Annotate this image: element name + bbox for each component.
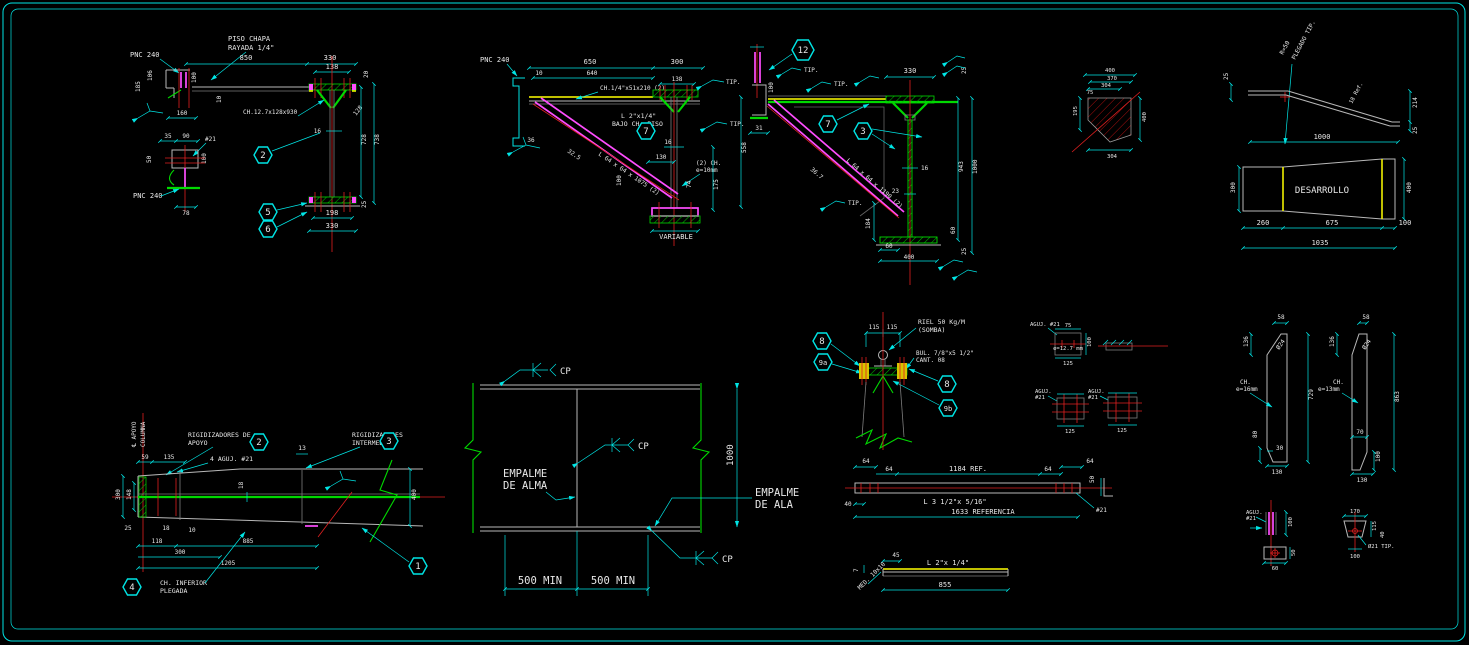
d10-dim-58l: 58 [1277,314,1285,321]
detail-10-web-plates: 58 136 Ø24 729 80 30 130 CH. e=16mm 58 1… [1236,314,1401,484]
d7-dim-500min-1: 500 MIN [518,575,562,587]
d1-dim-128: 128 [352,104,364,117]
d3-dim-330: 330 [904,67,917,75]
d6-ch-inf-2: PLEGADA [160,587,187,595]
d7-cp-2: CP [638,442,649,452]
d9-p4-bottom: 125 [1117,428,1127,434]
balloon-5-label: 5 [265,208,270,218]
d6-dim-10: 10 [188,527,196,534]
d3-dim-400: 400 [904,254,915,261]
d2-l-note-1: L 2"x1/4" [621,112,656,120]
d8-bul-note-2: CANT. 08 [916,357,945,364]
d1-pnc-bot: PNC 240 [133,192,163,200]
d12-dim-170: 170 [1350,509,1360,515]
d3-dim-100: 100 [768,82,775,93]
d6-dim-18: 18 [162,525,170,532]
d7-cp-1: CP [560,367,571,377]
d6-dim-400: 400 [411,489,418,500]
d6-dim-148: 148 [126,489,133,500]
d8-bul-note-1: BUL. 7/8"x5 1/2" [916,350,974,357]
d2-dim-74: 74 [686,180,693,188]
d7-empalme-alma-2: DE ALMA [503,480,548,492]
d9-p1-right: 100 [1087,337,1093,347]
cad-canvas: PISO CHAPA RAYADA 1/4" PNC 240 850 330 1… [0,0,1469,645]
d2-dim-36: 36 [527,137,535,144]
d1-dim-20: 20 [363,70,370,78]
cad-drawing-sheet: PISO CHAPA RAYADA 1/4" PNC 240 850 330 1… [0,0,1469,645]
d6-rig-apoyo-2: APOYO [188,439,208,447]
d9-p4-label-2: #21 [1088,395,1098,401]
balloon-7b-label: 7 [825,120,830,130]
d1-dim-160: 160 [177,110,188,117]
d1-dim-330: 330 [324,54,337,62]
d2-variable: VARIABLE [659,233,693,241]
d2-dim-138: 138 [672,76,683,83]
d2-tip-2: TIP. [730,121,744,128]
balloon-9b-label: 9b [944,405,952,413]
d10-ch-left-2: e=16mm [1236,386,1258,393]
detail-8-rail: 115 115 RIEL 50 Kg/M (SOMBA) BUL. 7/8"x5… [813,312,974,450]
d2-l-note-2: BAJO CH. PISO [612,120,663,128]
detail-9-drilled-plates: AGUJ. #21 75 e=12.7 mm 125 100 AGUJ. #21… [1030,322,1168,435]
d3-dim-31: 31 [755,125,763,132]
d10-dim-30: 30 [1276,445,1284,452]
d9-p1-label: AGUJ. #21 [1030,322,1060,328]
d9-p1-top: 75 [1065,323,1072,329]
d2-ch2-note-2: e=10mm [696,167,718,174]
d5-dim-214: 214 [1412,97,1419,108]
d7-cp-3: CP [722,555,733,565]
balloon-4-label: 4 [129,583,134,593]
d2-strut-label: L 64 x 64 x 1075 (2) [597,151,661,197]
d11-dim-855: 855 [939,581,952,589]
d5-note-r50: R=50 [1279,40,1292,56]
d5-dim-260: 260 [1257,219,1270,227]
d6-centerline-columna: COLUMNA [140,421,147,447]
d11-dim-64a: 64 [862,458,870,465]
d1-dim-850: 850 [240,54,253,62]
d6-dim-118: 118 [152,538,163,545]
d2-dim-130: 130 [656,154,667,161]
detail-12-hole-details: AGUJ. #21 100 50 60 170 115 40 100 Ø21 T… [1246,500,1395,572]
d5-dim-1035: 1035 [1312,239,1329,247]
d11-dim-64b: 64 [885,466,893,473]
d11-bar2-label: L 2"x 1/4" [927,559,969,567]
d12-note-tip: Ø21 TIP. [1368,543,1395,550]
d10-dim-130l: 130 [1272,469,1283,476]
d12-dim-115: 115 [1372,521,1378,531]
d8-riel-note-1: RIEL 50 Kg/M [918,318,965,326]
d6-centerline-apoyo: ℄ APOYO [131,421,138,448]
d11-hole-21: #21 [1096,507,1107,514]
d6-dim-13: 13 [298,444,306,452]
d7-empalme-ala-2: DE ALA [755,499,794,511]
d2-dim-650: 650 [584,58,597,66]
d2-tip-1: TIP. [726,79,740,86]
detail-7-splice: CP CP CP EMPALME DE ALMA EMPALME DE ALA … [465,363,799,596]
d1-dim-100: 100 [191,72,198,83]
d1-ch-note: CH.12.7x128x930 [243,109,298,116]
d3-dim-184: 184 [865,218,872,229]
d11-bar1-label: L 3 1/2"x 5/16" [923,498,986,506]
d3-dim-60: 60 [885,243,893,250]
d6-rig-apoyo-1: RIGIDIZADORES DE [188,431,251,439]
d10-dim-100r: 100 [1375,451,1382,462]
balloon-7-label: 7 [643,127,648,137]
d6-dim-300: 300 [175,549,186,556]
d10-dim-70: 70 [1356,429,1364,436]
d1-dim-10: 10 [216,95,223,103]
d4-dim-370: 370 [1107,76,1117,82]
d12-dim-100l: 100 [1288,517,1294,527]
d11-dim-64e: 64 [1086,458,1094,465]
d2-ch2-note-1: (2) CH. [696,160,721,167]
d3-dim-25b: 25 [961,247,968,255]
d2-dim-175: 175 [713,179,720,190]
d5-dim-25r: 25 [1412,126,1419,134]
d5-ref-18: 18 Ref. [1348,82,1364,105]
d11-ref-1184: 1184 REF. [949,465,987,473]
d7-dim-500min-2: 500 MIN [591,575,635,587]
detail-2-bracket-strut: PNC 240 650 300 10 640 138 CH.1/4"x51x21… [480,56,748,246]
d2-dim-558: 558 [741,142,748,153]
d10-dim-863: 863 [1394,391,1401,402]
d4-dim-304b: 304 [1107,154,1118,160]
d6-dim-135: 135 [164,454,175,461]
balloon-6-label: 6 [265,225,270,235]
balloon-12-label: 12 [798,46,809,56]
d1-dim-90: 90 [182,133,190,140]
d10-dim-130r: 130 [1357,477,1368,484]
d4-dim-304t: 304 [1101,83,1112,89]
d5-desarrollo-label: DESARROLLO [1295,186,1349,196]
d2-pnc: PNC 240 [480,56,510,64]
d1-dim-738: 738 [374,134,381,145]
d4-dim-400r: 400 [1142,112,1148,122]
balloon-3b-label: 3 [386,437,391,447]
d1-hole-21: #21 [205,136,216,143]
d10-ch-right-1: CH. [1333,379,1344,386]
d6-aguj-note: 4 AGUJ. #21 [210,455,253,463]
balloon-3-label: 3 [860,127,865,137]
d10-ch-right-2: e=13mm [1318,386,1340,393]
balloon-1-label: 1 [415,562,420,572]
balloon-2b-label: 2 [256,438,261,448]
d8-dim-115b: 115 [887,324,898,331]
d11-dim-7: 7 [853,568,860,572]
d12-dim-100r: 100 [1350,554,1360,560]
d9-p3-bottom: 125 [1065,429,1075,435]
d1-dim-728: 728 [361,134,368,145]
d11-dim-50: 50 [1089,475,1096,483]
d10-ch-left-1: CH. [1240,379,1251,386]
d4-dim-400t: 400 [1105,68,1115,74]
d5-note-plegado: PLEGADO TIP. [1291,19,1318,61]
d3-dim-1000: 1000 [972,159,979,174]
d6-dim-25: 25 [124,525,132,532]
d5-dim-675: 675 [1326,219,1339,227]
d3-tip-3: TIP. [848,200,862,207]
d3-angle: 36.7 [809,166,825,181]
d6-dim-300v: 300 [115,489,122,500]
d5-dim-25l: 25 [1223,72,1230,80]
detail-1-beam-section: PISO CHAPA RAYADA 1/4" PNC 240 850 330 1… [130,35,381,252]
d6-dim-1205: 1205 [221,560,236,567]
detail-5-bent-plate: R=50 PLEGADO TIP. 25 18 Ref. 214 25 1000… [1223,19,1419,248]
balloon-9a-label: 9a [819,359,827,367]
d10-dim-o24r: Ø24 [1361,338,1373,351]
d1-piso-note-1: PISO CHAPA [228,35,271,43]
detail-6-beam-elevation: ℄ APOYO COLUMNA RIGIDIZADORES DE APOYO 2… [112,413,445,595]
d5-dim-100: 100 [1399,219,1412,227]
d2-dim-10: 10 [535,70,543,77]
d11-ref-1633: 1633 REFERENCIA [951,508,1015,516]
d6-dim-18w: 18 [238,481,245,489]
detail-11-angle-bars: 64 64 1184 REF. 64 64 40 1633 REFERENCIA… [844,458,1113,591]
d2-dim-100: 100 [616,175,623,186]
d1-dim-185: 185 [135,81,142,92]
balloon-2-label: 2 [260,151,265,161]
d5-dim-400: 400 [1406,182,1413,193]
d3-dim-16: 16 [921,165,929,172]
d12-label-2: #21 [1246,516,1256,522]
d4-dim-195: 195 [1073,106,1079,116]
d11-dim-64c: 64 [1044,466,1052,473]
detail-3-bracket-column: 12 100 TIP. TIP. 330 25 7 3 L 64 x 64 x … [750,40,979,285]
d11-dim-45: 45 [892,552,900,559]
d1-pnc-top: PNC 240 [130,51,160,59]
d3-dim-943: 943 [958,161,965,172]
d12-dim-40: 40 [1380,531,1386,538]
d1-dim-198: 198 [326,209,339,217]
d11-med-note: MED. 10x10 [856,561,887,592]
d1-dim-25: 25 [361,200,368,208]
d2-dim-640: 640 [587,70,598,77]
d8-dim-115a: 115 [869,324,880,331]
d1-dim-35: 35 [164,133,172,140]
d9-p1-bottom: 125 [1063,361,1073,367]
d7-empalme-ala-1: EMPALME [755,487,799,499]
d6-dim-885: 885 [243,538,254,545]
d3-dim-23: 23 [892,188,900,195]
d2-dim-300: 300 [671,58,684,66]
d3-dim-60r: 60 [950,226,957,234]
d2-dim-16: 16 [664,139,672,146]
balloon-8a-label: 8 [819,337,824,347]
d12-dim-50: 50 [1291,549,1297,556]
d2-angle: 32.5 [566,148,582,162]
d6-dim-59: 59 [141,454,149,461]
balloon-8b-label: 8 [944,380,949,390]
d4-dim-75: 75 [1087,90,1094,96]
d1-dim-330b: 330 [326,222,339,230]
d9-p3-label-2: #21 [1035,395,1045,401]
d1-dim-78: 78 [182,210,190,217]
d12-dim-60: 60 [1272,566,1279,572]
d10-dim-729: 729 [1308,389,1315,400]
d9-p1-e: e=12.7 mm [1053,346,1083,352]
d5-dim-300: 300 [1230,182,1237,193]
d3-tip-2: TIP. [834,81,848,88]
d7-dim-1000: 1000 [726,444,736,466]
d10-dim-136r: 136 [1329,336,1336,347]
sheet-border-inner [11,9,1458,629]
d1-piso-note-2: RAYADA 1/4" [228,44,274,52]
d10-dim-136l: 136 [1243,336,1250,347]
d11-dim-40: 40 [844,501,852,508]
d7-empalme-alma-1: EMPALME [503,468,547,480]
d3-tip-1: TIP. [804,67,818,74]
d8-riel-note-2: (SOMBA) [918,326,945,334]
detail-4-gusset-plate: 400 370 304 75 195 400 304 [1072,68,1148,160]
d10-dim-58r: 58 [1362,314,1370,321]
d6-ch-inf-1: CH. INFERIOR [160,579,207,587]
d5-dim-1000: 1000 [1314,133,1331,141]
d10-dim-80: 80 [1252,430,1259,438]
d1-dim-106: 106 [147,70,154,81]
d1-dim-50: 50 [146,155,153,163]
